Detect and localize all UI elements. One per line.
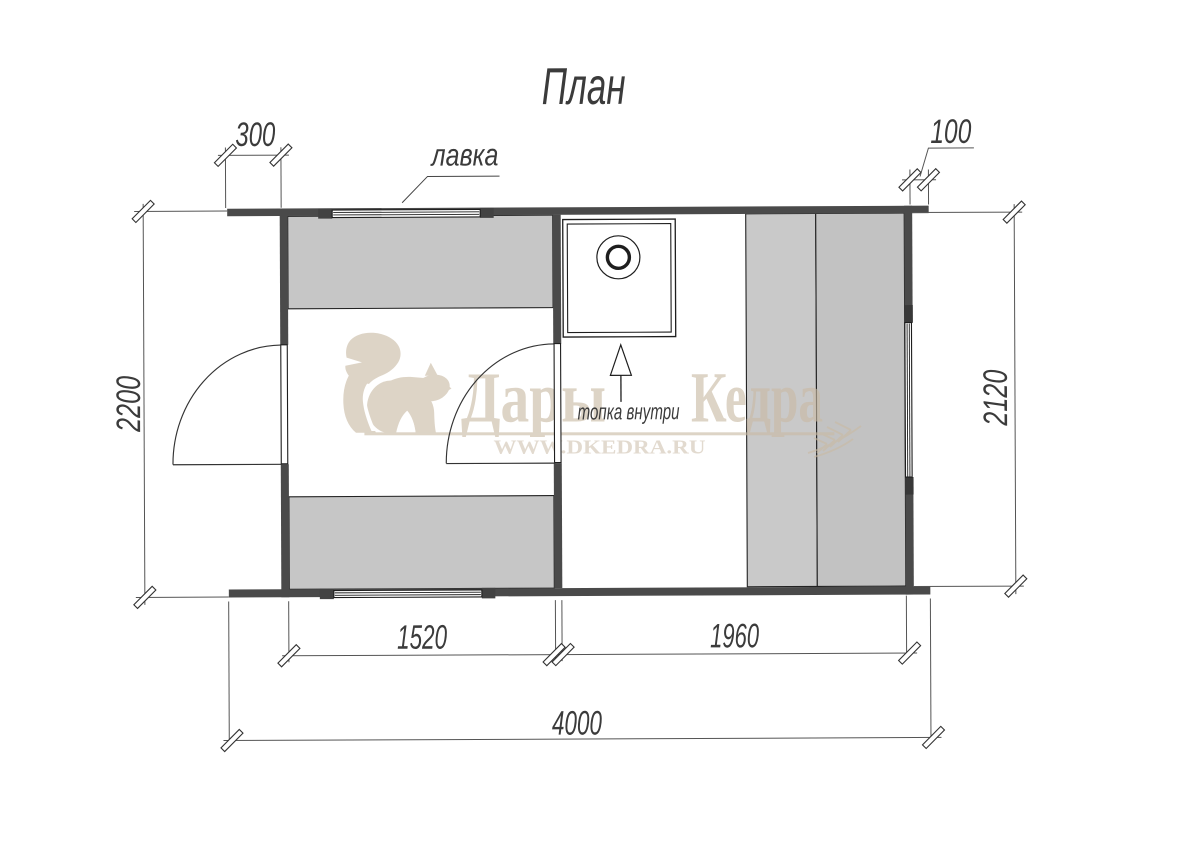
- svg-text:WWW.DKEDRA.RU: WWW.DKEDRA.RU: [494, 438, 706, 459]
- svg-text:Дары: Дары: [461, 358, 606, 438]
- svg-text:4000: 4000: [552, 704, 602, 742]
- svg-text:лавка: лавка: [430, 137, 499, 172]
- svg-text:2200: 2200: [110, 376, 148, 433]
- svg-text:2120: 2120: [977, 370, 1015, 427]
- svg-text:Кедра: Кедра: [691, 358, 823, 438]
- svg-text:План: План: [542, 58, 626, 116]
- svg-text:1520: 1520: [397, 619, 447, 657]
- svg-text:1960: 1960: [710, 617, 759, 655]
- svg-text:топка внутри: топка внутри: [577, 399, 679, 424]
- svg-text:300: 300: [235, 116, 275, 154]
- svg-text:100: 100: [930, 113, 971, 151]
